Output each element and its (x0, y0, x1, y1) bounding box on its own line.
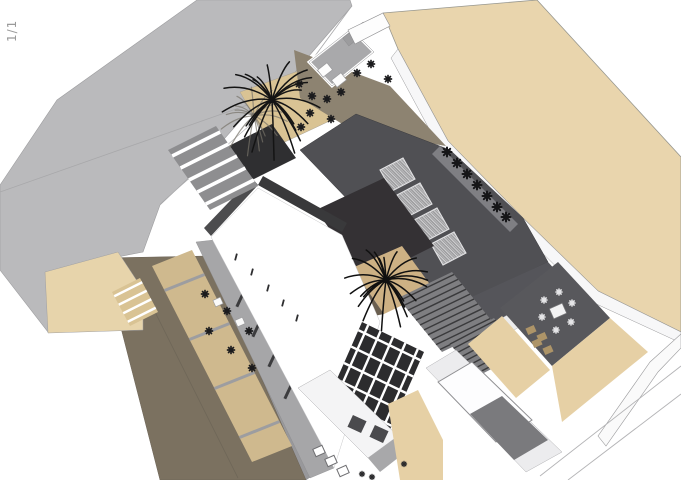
west-terrace-chairs (203, 292, 207, 296)
west-terrace-chairs (247, 329, 251, 333)
west-terrace-chairs (207, 329, 211, 333)
site-axonometric-rendering (0, 0, 681, 480)
dining-chairs (569, 320, 572, 323)
upper-terrace-chairs (310, 94, 314, 98)
upper-terrace-chairs (339, 90, 343, 94)
palm-tree-upper (269, 97, 275, 103)
upper-terrace-chairs (308, 111, 312, 115)
west-terrace-chairs (225, 309, 229, 313)
page-indicator: 1/1 (5, 20, 19, 42)
roof-edge-planters (465, 172, 470, 177)
roof-edge-planters (475, 183, 480, 188)
dining-chairs (554, 328, 557, 331)
upper-terrace-chairs (299, 125, 303, 129)
dining-chairs (557, 290, 560, 293)
roof-vent-boxes (337, 465, 349, 476)
west-terrace-chairs (229, 348, 233, 352)
tan-court-bottom (388, 390, 443, 480)
bottom-plants (403, 463, 406, 466)
upper-terrace-chairs (329, 117, 333, 121)
bottom-plants (371, 476, 374, 479)
dining-chairs (540, 315, 543, 318)
palm-tree-courtyard (383, 277, 389, 283)
roof-edge-planters (495, 205, 500, 210)
roof-edge-planters (485, 194, 490, 199)
roof-edge-planters (455, 161, 460, 166)
upper-terrace-chairs (325, 97, 329, 101)
roof-edge-planters (504, 215, 509, 220)
dining-chairs (542, 298, 545, 301)
roof-edge-planters (445, 150, 450, 155)
dining-chairs (570, 301, 573, 304)
bottom-plants (361, 473, 364, 476)
upper-terrace-chairs (355, 71, 359, 75)
entry-wall-strip (348, 13, 390, 44)
upper-terrace-chairs (369, 62, 373, 66)
drawing-sheet: 1/1 (0, 0, 681, 480)
upper-terrace-chairs (386, 77, 390, 81)
west-terrace-chairs (250, 366, 254, 370)
